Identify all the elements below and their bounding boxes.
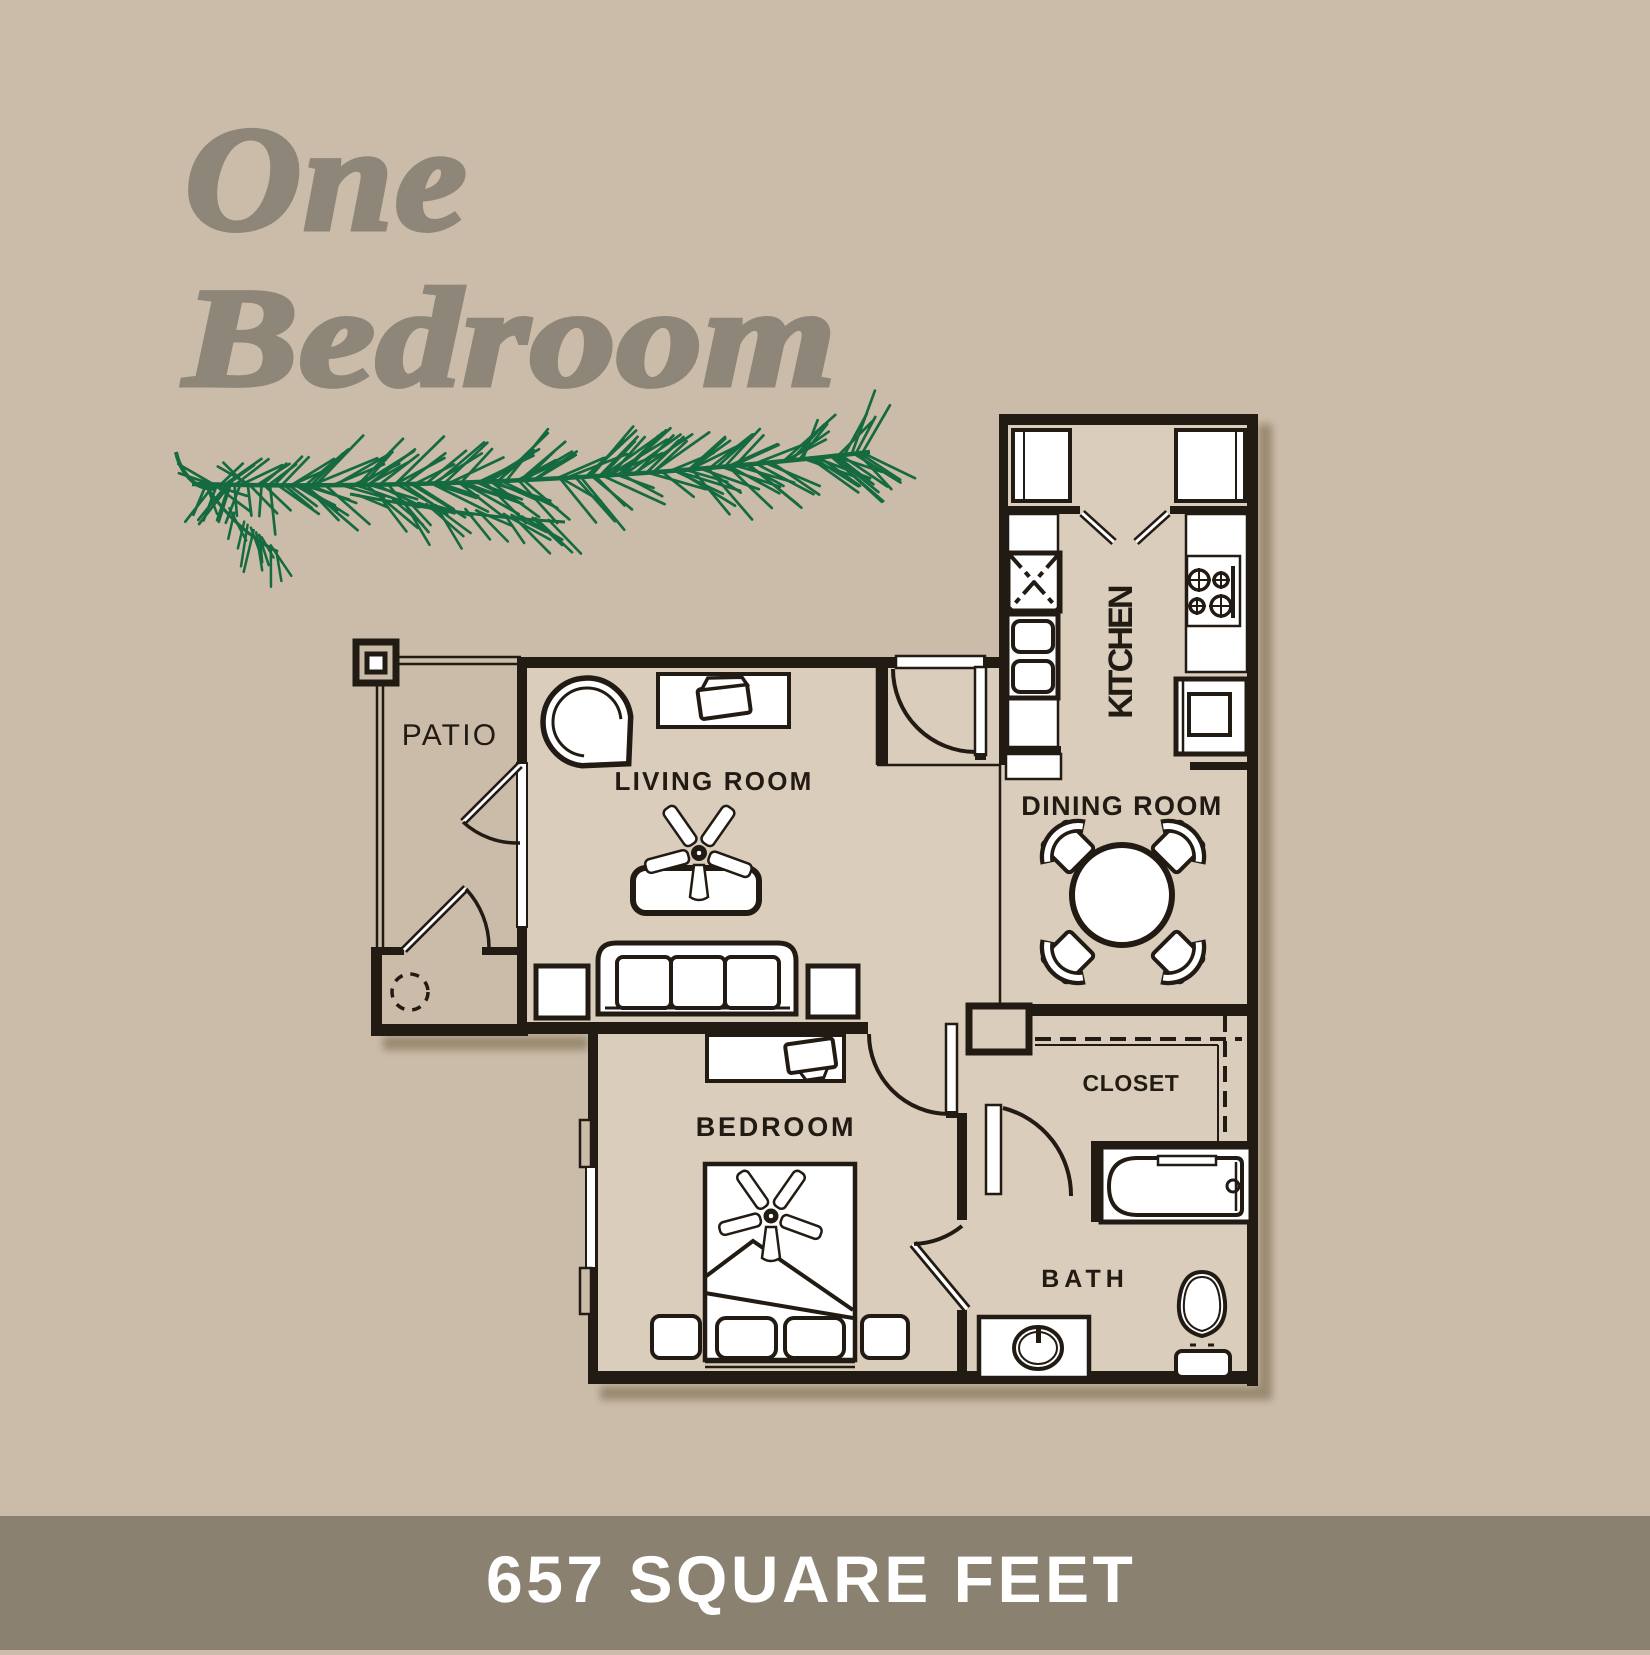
svg-text:DINING ROOM: DINING ROOM: [1021, 791, 1222, 821]
svg-text:One: One: [185, 97, 469, 262]
svg-text:BEDROOM: BEDROOM: [696, 1112, 857, 1142]
svg-text:CLOSET: CLOSET: [1083, 1070, 1180, 1096]
svg-text:657 SQUARE FEET: 657 SQUARE FEET: [486, 1542, 1136, 1616]
svg-text:PATIO: PATIO: [402, 719, 499, 752]
svg-text:BATH: BATH: [1041, 1265, 1129, 1293]
svg-text:KITCHEN: KITCHEN: [1102, 586, 1140, 719]
svg-text:Bedroom: Bedroom: [182, 260, 837, 416]
svg-text:LIVING ROOM: LIVING ROOM: [615, 766, 814, 796]
